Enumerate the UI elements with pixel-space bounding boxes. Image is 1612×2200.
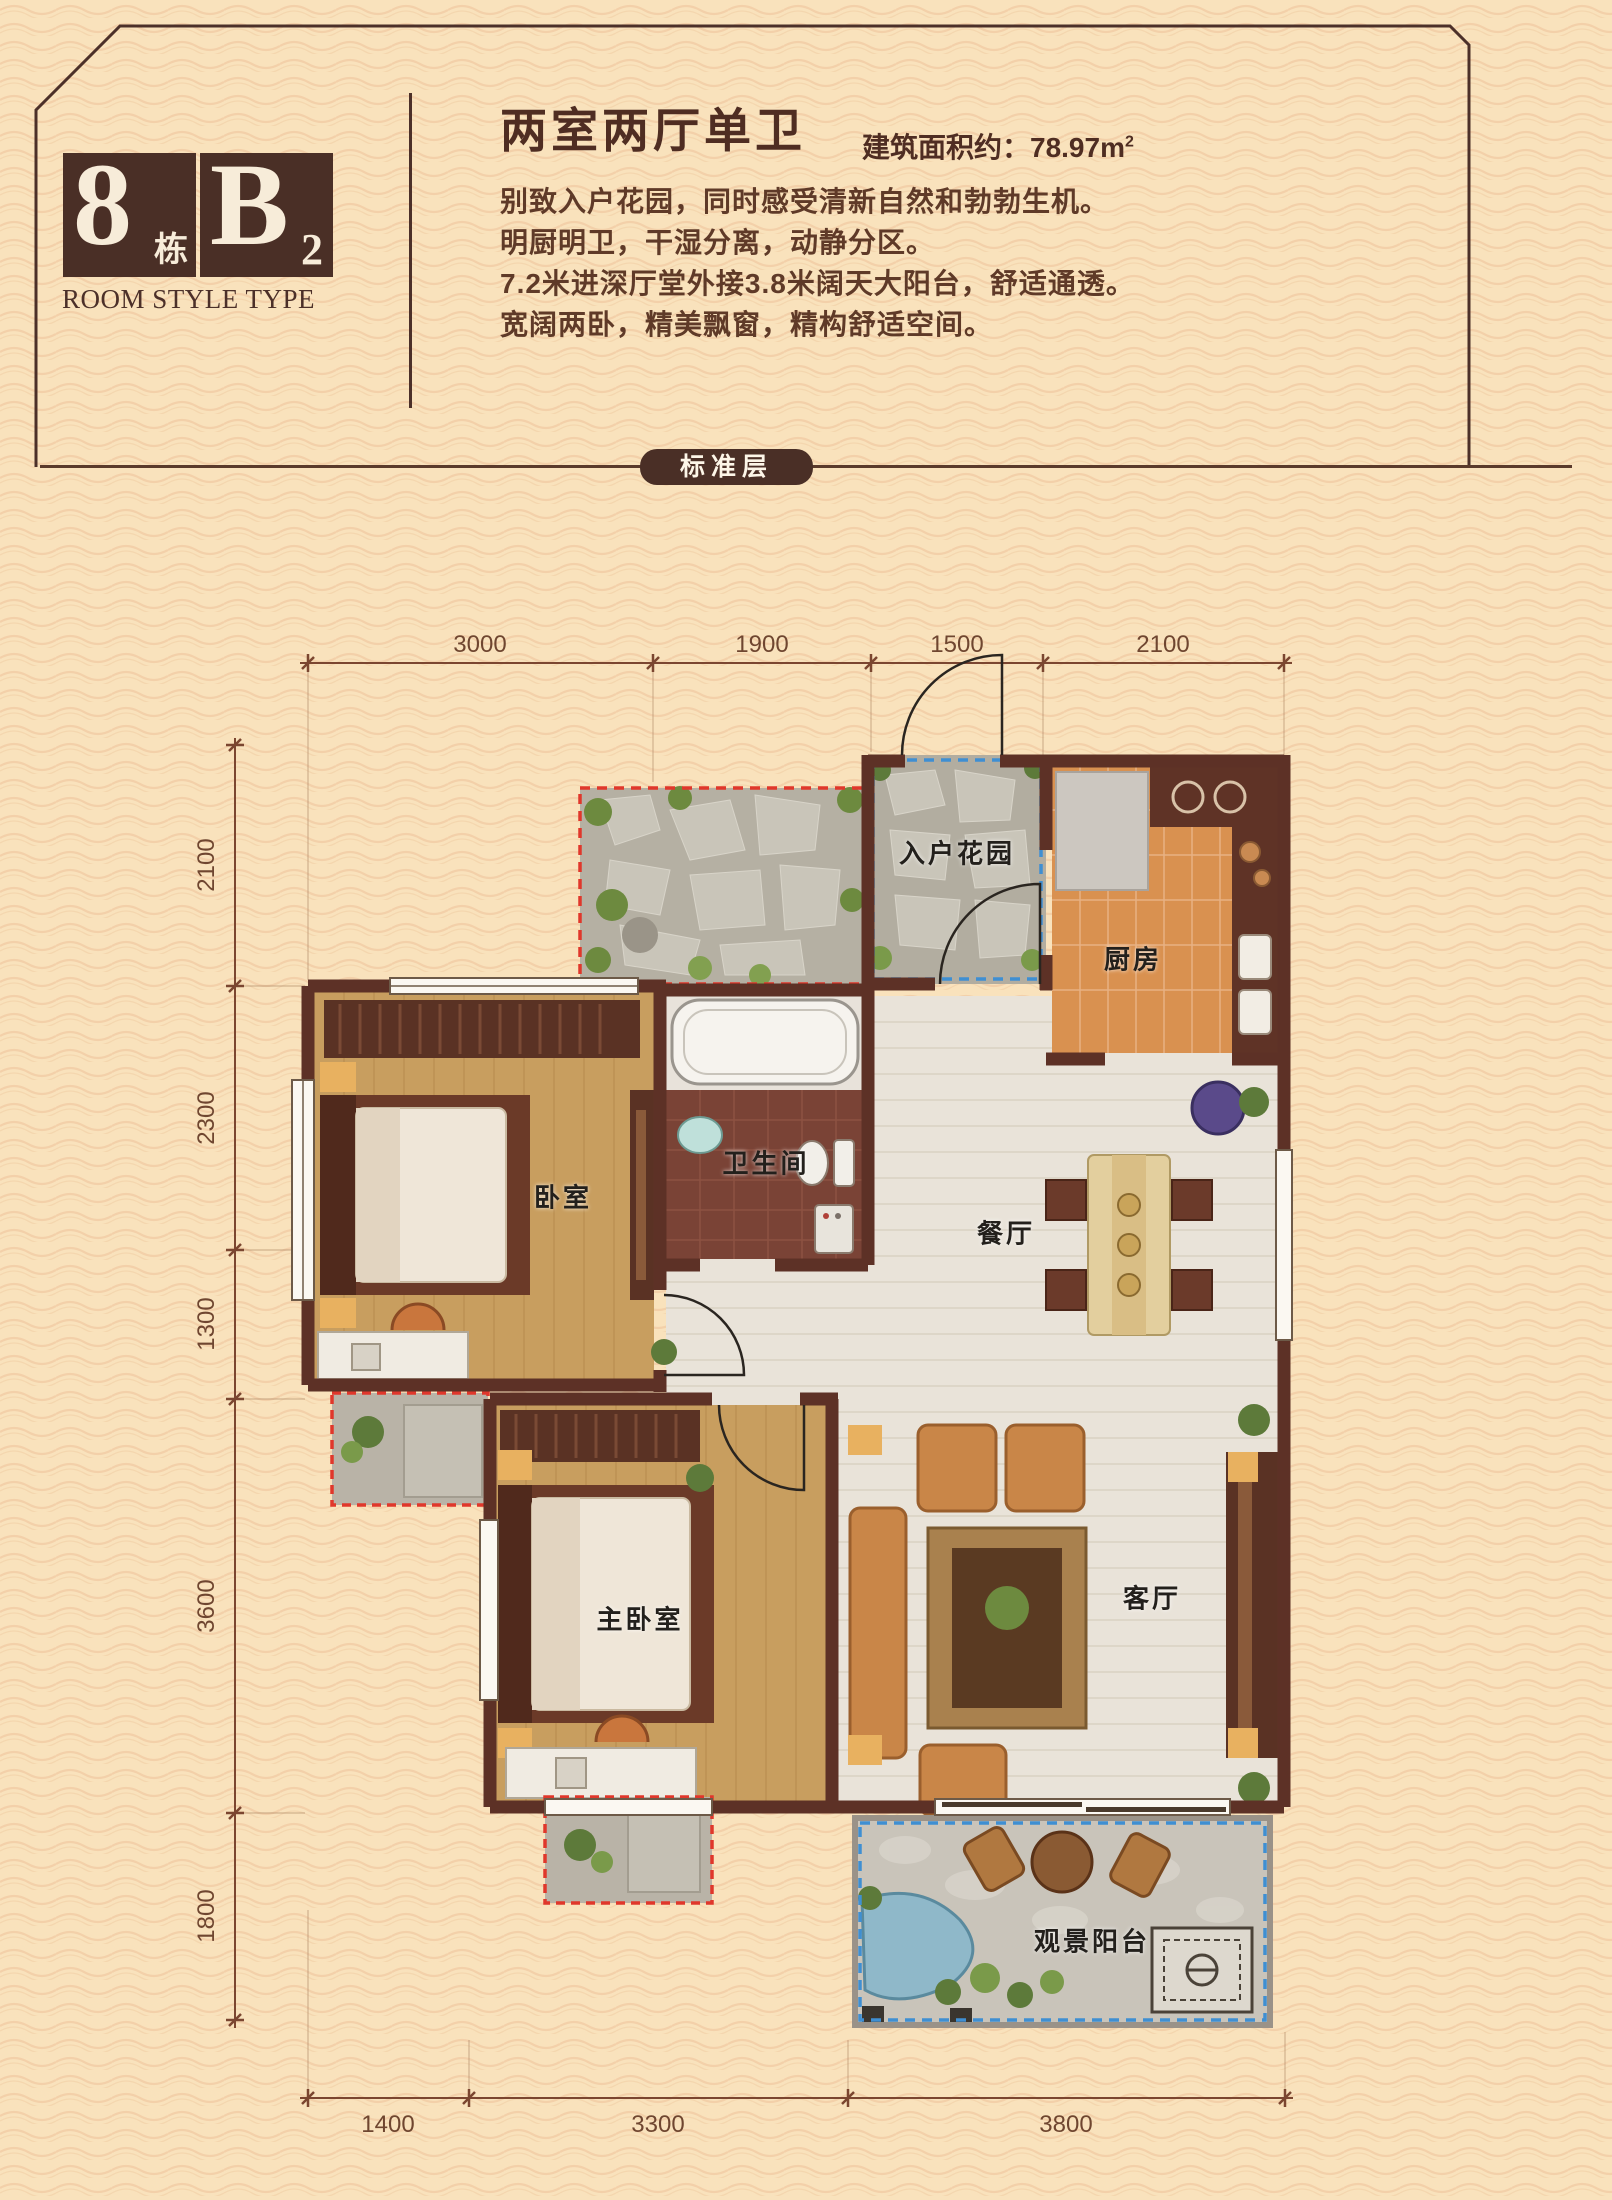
washbasin-icon [678, 1117, 722, 1153]
round-table-icon [1032, 1832, 1092, 1892]
bathtub-icon [672, 1000, 858, 1084]
dim-bottom-0: 1400 [361, 2111, 414, 2138]
plant-icon [686, 1464, 714, 1492]
room-label-dining: 餐厅 [977, 1214, 1035, 1251]
unit-letter: B [210, 137, 289, 273]
tv-cabinet-icon [1226, 1452, 1278, 1758]
header-divider [409, 93, 412, 408]
room-label-living: 客厅 [1123, 1579, 1181, 1616]
sink-icon [1239, 990, 1271, 1034]
dimension-line-bottom [300, 2089, 1293, 2107]
dim-top-0: 3000 [453, 631, 506, 658]
wardrobe-icon [324, 1000, 640, 1058]
plant-icon [1238, 1404, 1270, 1436]
room-label-entry-garden: 入户花园 [899, 834, 1015, 871]
sliding-door [935, 1799, 1230, 1815]
wall-lamp-icon [848, 1735, 882, 1765]
wall-lamp-icon [848, 1425, 882, 1455]
building-number-box: 8 栋 [63, 153, 196, 277]
area-label: 建筑面积约：78.97m2 [862, 126, 1134, 166]
room-label-balcony: 观景阳台 [1034, 1922, 1150, 1959]
room-label-bathroom: 卫生间 [722, 1144, 809, 1181]
dim-left-4: 1800 [193, 1889, 220, 1942]
desk-icon [318, 1332, 468, 1379]
feature-line: 7.2米进深厅堂外接3.8米阔天大阳台，舒适通透。 [500, 263, 1135, 304]
dim-left-0: 2100 [193, 838, 220, 891]
unit-letter-box: B 2 [200, 153, 333, 277]
room-style-caption: ROOM STYLE TYPE [62, 284, 334, 315]
washer-icon [815, 1205, 853, 1253]
stone-pot-icon [622, 917, 658, 953]
dim-top-1: 1900 [735, 631, 788, 658]
brochure-page: 3000 1900 1500 2100 2100 2300 1300 3600 … [0, 0, 1612, 2200]
page-title: 两室两厅单卫 [500, 92, 806, 161]
room-label-master-bedroom: 主卧室 [596, 1600, 683, 1637]
area-value: 建筑面积约：78.97 [862, 132, 1100, 163]
unit-badge: 8 栋 B 2 [63, 153, 333, 277]
dimension-line-left [226, 738, 244, 2028]
bedroom-floor [314, 992, 677, 1379]
dim-left-3: 3600 [193, 1579, 220, 1632]
bathroom-floor [666, 996, 862, 1259]
fridge-icon [1056, 772, 1148, 890]
standard-floor-tag: 标准层 [640, 449, 813, 485]
bed-icon [320, 1095, 530, 1295]
room-label-kitchen: 厨房 [1104, 940, 1162, 977]
feature-line: 宽阔两卧，精美飘窗，精构舒适空间。 [500, 304, 1135, 345]
plant-icon [1192, 1082, 1244, 1134]
building-number: 8 [73, 137, 132, 273]
dim-top-2: 1500 [930, 631, 983, 658]
plant-icon [1238, 1772, 1270, 1804]
dim-bottom-2: 3800 [1039, 2111, 1092, 2138]
dim-left-2: 1300 [193, 1297, 220, 1350]
area-unit: m [1100, 132, 1125, 163]
dim-bottom-1: 3300 [631, 2111, 684, 2138]
feature-line: 明厨明卫，干湿分离，动静分区。 [500, 222, 1135, 263]
feature-list: 别致入户花园，同时感受清新自然和勃勃生机。 明厨明卫，干湿分离，动静分区。 7.… [500, 181, 1135, 345]
building-suffix: 栋 [154, 222, 188, 271]
desk-icon [506, 1748, 696, 1798]
nightstand-icon [320, 1062, 356, 1092]
nightstand-icon [320, 1298, 356, 1328]
kitchen-floor [1052, 767, 1278, 1053]
area-unit-sup: 2 [1125, 134, 1134, 151]
unit-sub: 2 [301, 224, 323, 275]
drain-icon [1152, 1928, 1252, 2012]
sink-icon [1239, 935, 1271, 979]
flower-box [332, 1393, 488, 1505]
dim-left-1: 2300 [193, 1091, 220, 1144]
feature-line: 别致入户花园，同时感受清新自然和勃勃生机。 [500, 181, 1135, 222]
plant-icon [1239, 1087, 1269, 1117]
exterior-garden [580, 786, 868, 986]
dim-top-3: 2100 [1136, 631, 1189, 658]
room-label-bedroom: 卧室 [534, 1178, 592, 1215]
plant-icon [651, 1339, 677, 1365]
nightstand-icon [498, 1450, 532, 1480]
